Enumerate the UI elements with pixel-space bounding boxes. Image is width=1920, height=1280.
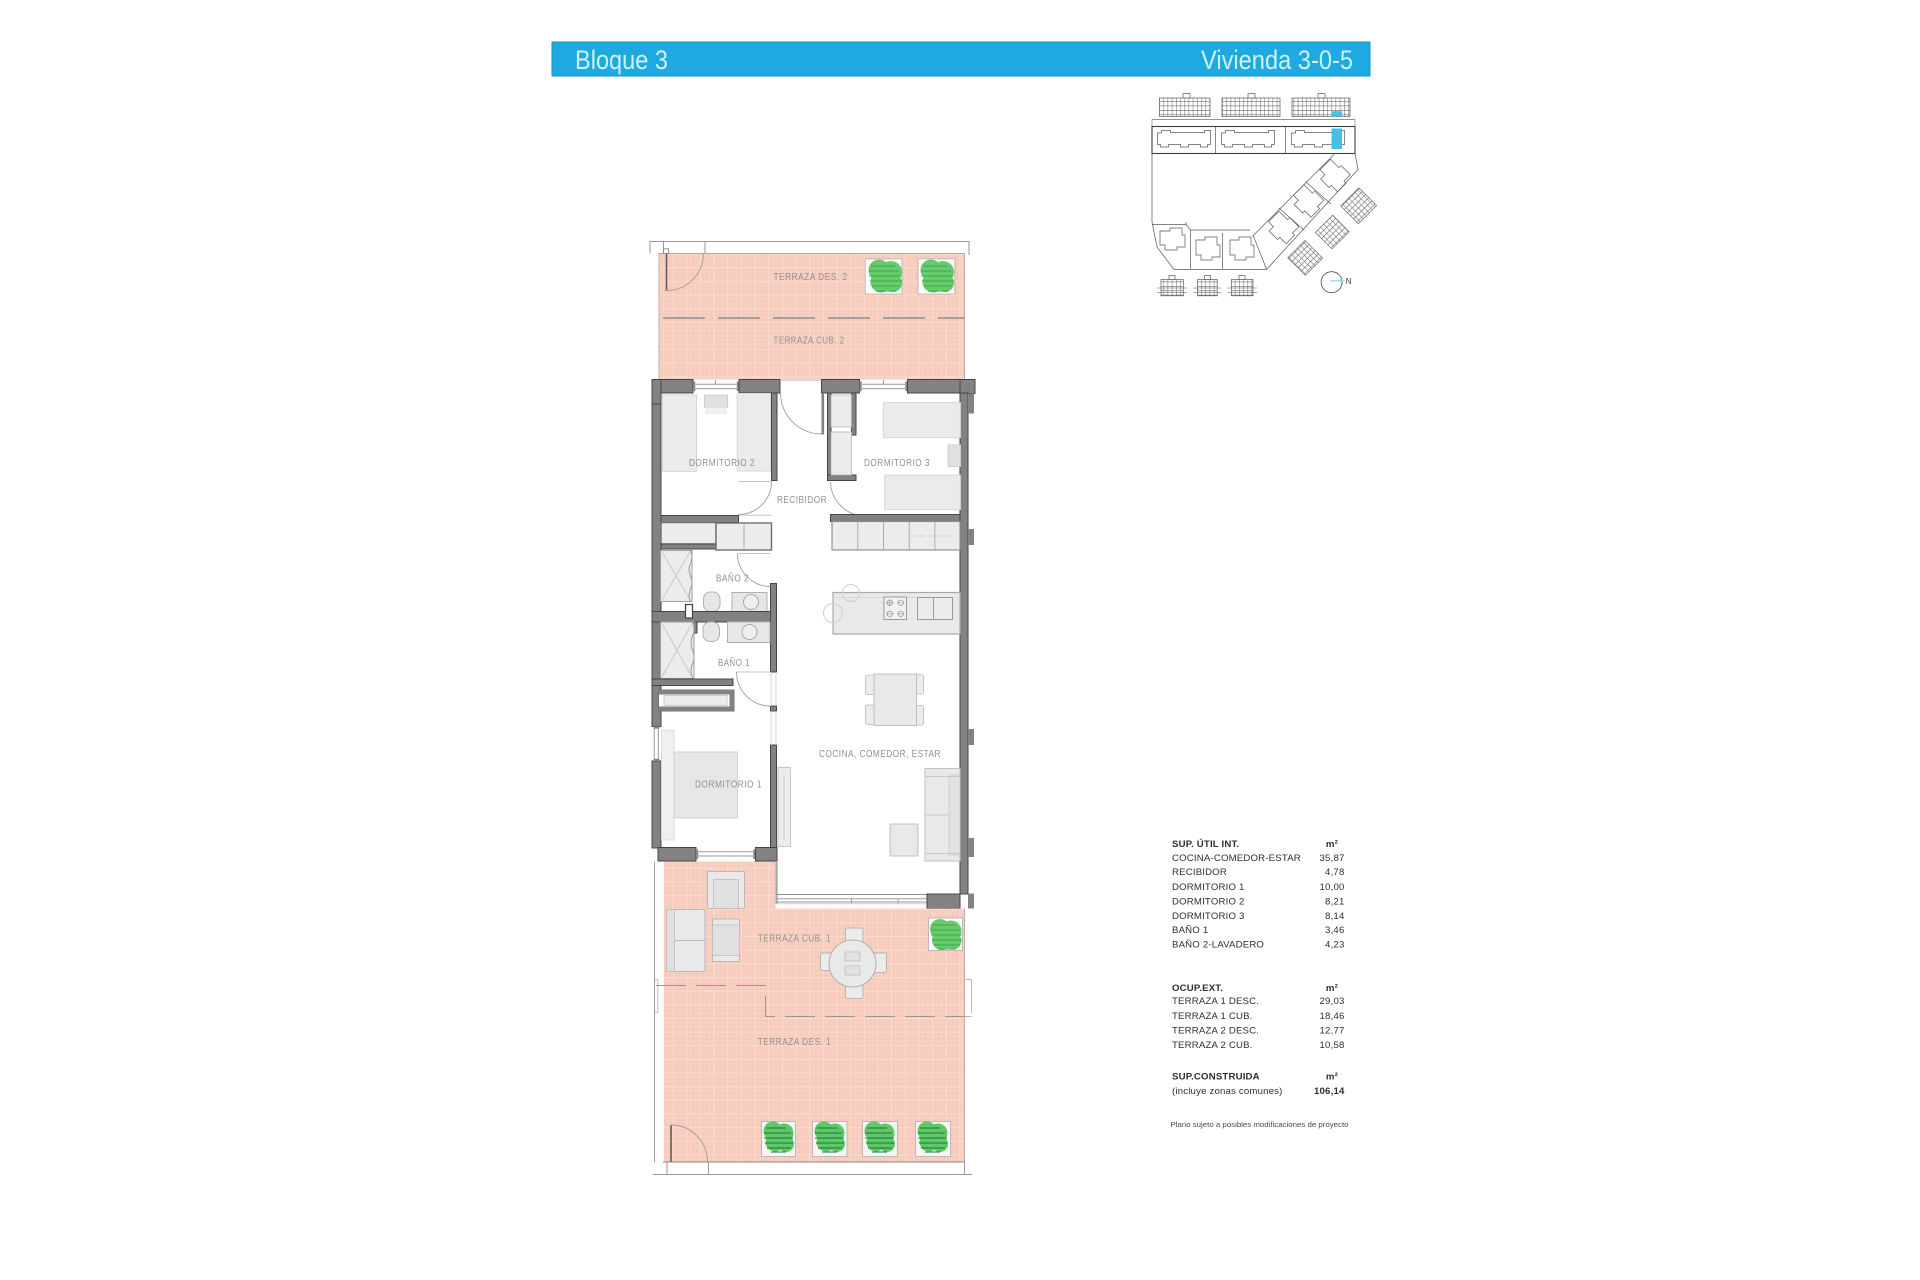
svg-text:DORMITORIO 2: DORMITORIO 2 <box>1172 897 1245 908</box>
svg-text:35,87: 35,87 <box>1320 853 1345 864</box>
svg-text:TERRAZA 1 CUB.: TERRAZA 1 CUB. <box>1172 1011 1253 1022</box>
svg-text:TERRAZA CUB. 1: TERRAZA CUB. 1 <box>758 933 832 945</box>
svg-text:m²: m² <box>1326 839 1338 850</box>
svg-text:DORMITORIO 3: DORMITORIO 3 <box>1172 911 1245 922</box>
svg-text:DORMITORIO 1: DORMITORIO 1 <box>1172 882 1245 893</box>
svg-text:m²: m² <box>1326 983 1338 994</box>
svg-text:8,14: 8,14 <box>1325 911 1345 922</box>
svg-text:SUP. ÚTIL INT.: SUP. ÚTIL INT. <box>1172 838 1239 850</box>
svg-text:10,00: 10,00 <box>1320 882 1345 893</box>
svg-text:TERRAZA CUB. 2: TERRAZA CUB. 2 <box>774 335 845 347</box>
svg-text:Plano sujeto a posibles modifi: Plano sujeto a posibles modificaciones d… <box>1171 1120 1349 1129</box>
svg-text:4,23: 4,23 <box>1325 939 1344 950</box>
svg-text:RECIBIDOR: RECIBIDOR <box>1172 867 1227 878</box>
svg-text:COCINA-COMEDOR-ESTAR: COCINA-COMEDOR-ESTAR <box>1172 853 1301 864</box>
svg-text:TERRAZA 1 DESC.: TERRAZA 1 DESC. <box>1172 996 1259 1007</box>
svg-text:TERRAZA 2 CUB.: TERRAZA 2 CUB. <box>1172 1040 1253 1051</box>
svg-text:TERRAZA 2 DESC.: TERRAZA 2 DESC. <box>1172 1026 1259 1037</box>
svg-text:TERRAZA DES. 1: TERRAZA DES. 1 <box>758 1036 832 1048</box>
svg-text:TERRAZA DES. 2: TERRAZA DES. 2 <box>774 271 848 283</box>
svg-text:12,77: 12,77 <box>1320 1026 1345 1037</box>
svg-text:106,14: 106,14 <box>1314 1086 1345 1097</box>
svg-text:N: N <box>1346 277 1352 286</box>
svg-text:RECIBIDOR: RECIBIDOR <box>777 494 827 506</box>
svg-text:DORMITORIO 3: DORMITORIO 3 <box>864 457 930 469</box>
svg-text:DORMITORIO 1: DORMITORIO 1 <box>695 779 762 791</box>
svg-text:3,46: 3,46 <box>1325 925 1344 936</box>
svg-text:Vivienda 3-0-5: Vivienda 3-0-5 <box>1201 45 1353 75</box>
svg-text:DORMITORIO 2: DORMITORIO 2 <box>689 457 755 469</box>
svg-text:(incluye zonas comunes): (incluye zonas comunes) <box>1172 1086 1283 1097</box>
svg-text:Bloque 3: Bloque 3 <box>575 45 668 75</box>
svg-text:8,21: 8,21 <box>1325 897 1344 908</box>
svg-text:COCINA, COMEDOR, ESTAR: COCINA, COMEDOR, ESTAR <box>819 748 941 760</box>
svg-text:29,03: 29,03 <box>1320 996 1345 1007</box>
svg-text:BAÑO 1: BAÑO 1 <box>1172 925 1208 936</box>
svg-text:4,78: 4,78 <box>1325 867 1344 878</box>
svg-text:18,46: 18,46 <box>1320 1011 1345 1022</box>
svg-text:BAÑO 2-LAVADERO: BAÑO 2-LAVADERO <box>1172 939 1264 950</box>
svg-text:BAÑO 1: BAÑO 1 <box>718 656 750 669</box>
svg-text:m²: m² <box>1326 1072 1338 1083</box>
svg-text:OCUP.EXT.: OCUP.EXT. <box>1172 983 1223 994</box>
svg-text:SUP.CONSTRUIDA: SUP.CONSTRUIDA <box>1172 1072 1260 1083</box>
svg-text:10,58: 10,58 <box>1320 1040 1345 1051</box>
